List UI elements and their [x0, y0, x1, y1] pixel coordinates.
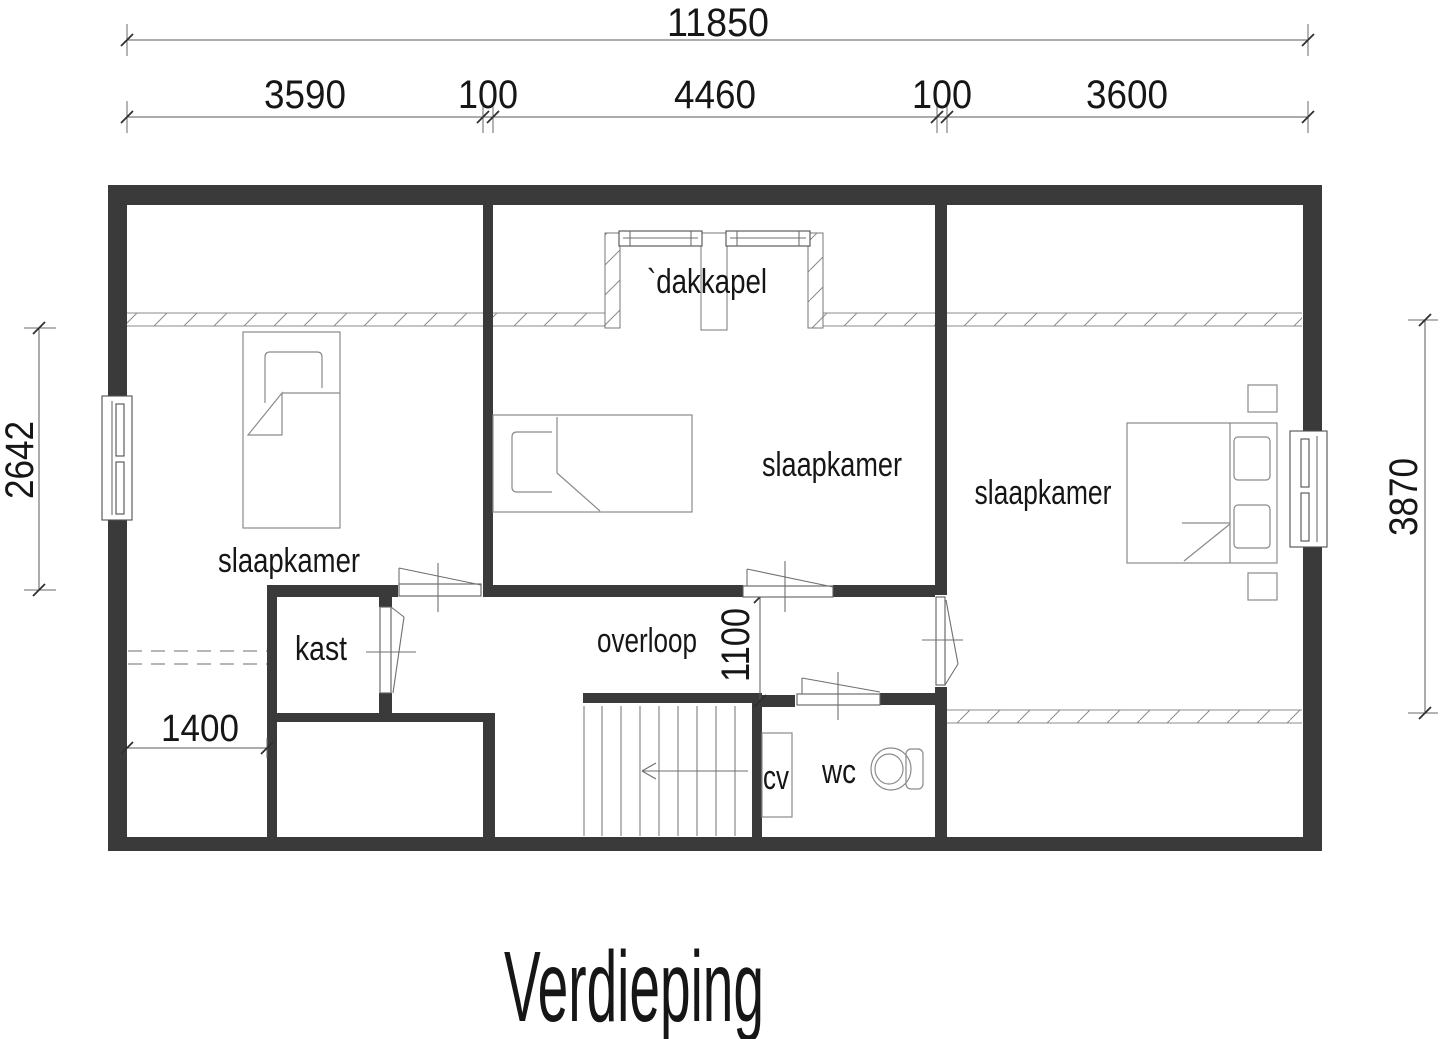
- window-right: [1290, 431, 1327, 547]
- dim-wall-right: 100: [912, 73, 972, 117]
- wall-landing-north-right: [833, 585, 935, 597]
- dormer: `dakkapel: [605, 231, 823, 330]
- wall-bottom: [108, 837, 1322, 851]
- wall-closet-door-post-top: [379, 593, 392, 607]
- dim-middle-width: 4460: [674, 73, 756, 117]
- label-wc: wc: [821, 753, 856, 791]
- dormer-window-left: [619, 231, 702, 246]
- door-bedroom-middle: [743, 561, 833, 612]
- dormer-window-right: [726, 231, 810, 246]
- wall-landing-north-mid: [493, 585, 743, 597]
- wall-top: [108, 185, 1322, 205]
- dim-wall-left: 100: [458, 73, 518, 117]
- toilet: [871, 748, 923, 790]
- dimension-top-total: 11850: [121, 1, 1314, 56]
- bed-left: [243, 332, 340, 528]
- wall-closet-west: [267, 585, 277, 837]
- bed-middle: [493, 415, 692, 512]
- door-bedroom-right: [922, 597, 963, 685]
- dimension-left-depth: 2642: [0, 322, 56, 596]
- window-left: [102, 396, 132, 520]
- floor-plan: 11850 3590 100 4460 100 3600 2642: [0, 0, 1440, 1039]
- floor-plan-page: 11850 3590 100 4460 100 3600 2642: [0, 0, 1440, 1039]
- wall-middle-right-divider-upper: [935, 205, 947, 595]
- dimension-top-segments: 3590 100 4460 100 3600: [121, 73, 1314, 133]
- label-bedroom-left: slaapkamer: [218, 542, 360, 580]
- label-closet: kast: [295, 630, 347, 668]
- label-bedroom-middle: slaapkamer: [762, 446, 902, 484]
- dim-left-room-depth: 2642: [0, 421, 42, 499]
- dimension-knee-strip: 1400: [121, 708, 273, 758]
- dimension-landing: 1100: [714, 591, 766, 707]
- nightstand-bottom: [1248, 573, 1277, 600]
- door-wc: [797, 672, 880, 720]
- label-cv: cv: [763, 759, 789, 797]
- bed-right: [1127, 385, 1277, 600]
- wall-stairs-north: [583, 693, 762, 703]
- page-title: Verdieping: [504, 931, 764, 1039]
- door-bedroom-left: [399, 563, 481, 612]
- dim-knee-strip-width: 1400: [161, 708, 239, 750]
- nightstand-top: [1248, 385, 1277, 412]
- door-closet: [366, 607, 416, 693]
- label-bedroom-right: slaapkamer: [975, 474, 1112, 512]
- wall-stairs-east: [752, 703, 762, 837]
- dim-total-width: 11850: [667, 1, 769, 45]
- wall-left-middle-divider: [483, 205, 493, 597]
- wall-landing-north-left: [267, 585, 398, 597]
- stairs-direction-arrow: [642, 763, 748, 779]
- wall-storage-east: [483, 713, 495, 837]
- wall-wc-north-left: [762, 695, 795, 707]
- dim-right-room-depth: 3870: [1382, 458, 1426, 536]
- stairs: [584, 706, 748, 836]
- dormer-wall-right: [808, 233, 823, 328]
- dormer-wall-left: [605, 233, 620, 328]
- dim-left-width: 3590: [264, 73, 346, 117]
- headroom-dashed-lines: [128, 651, 267, 664]
- label-landing: overloop: [597, 622, 697, 660]
- dim-landing-width: 1100: [714, 608, 758, 682]
- dim-right-width: 3600: [1086, 73, 1168, 117]
- wall-wc-north-right: [880, 693, 935, 705]
- wall-middle-right-divider-lower: [935, 687, 947, 837]
- wall-closet-south: [267, 713, 495, 722]
- roofline-hatch-lower: [947, 710, 1302, 723]
- dormer-label: `dakkapel: [647, 263, 767, 301]
- dimension-right-depth: 3870: [1382, 314, 1438, 719]
